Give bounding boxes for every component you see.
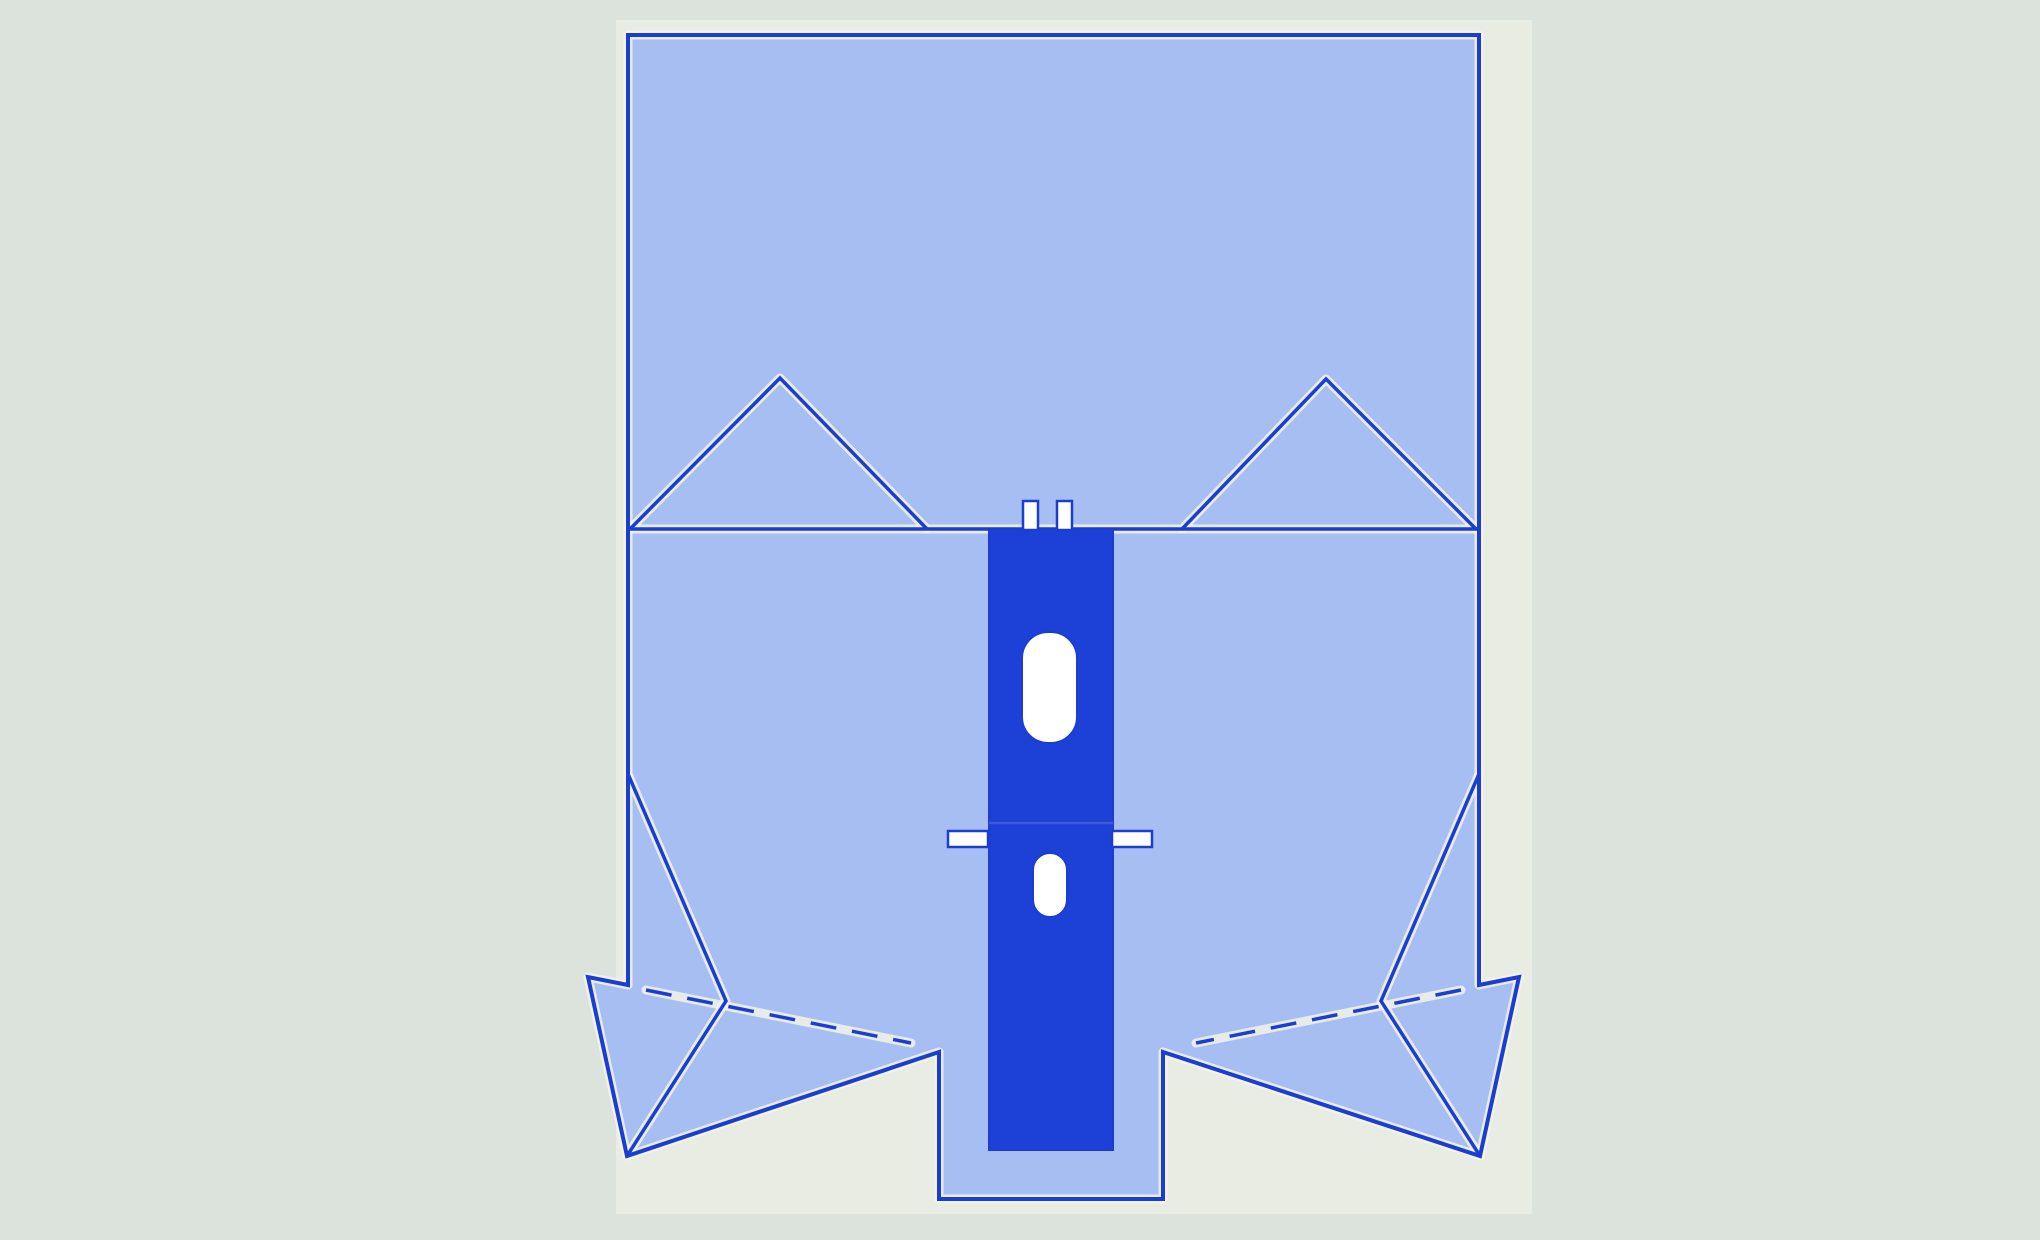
side-tab-right bbox=[1112, 831, 1152, 847]
center-strip bbox=[989, 529, 1113, 1150]
drape-diagram-canvas bbox=[0, 0, 2040, 1240]
small-fenestration-slot bbox=[1033, 853, 1067, 917]
large-fenestration-slot bbox=[1022, 632, 1077, 743]
top-tab-1 bbox=[1023, 501, 1038, 530]
diagram-stage bbox=[0, 0, 2040, 1240]
top-tab-2 bbox=[1057, 501, 1072, 530]
side-tab-left bbox=[948, 831, 988, 847]
